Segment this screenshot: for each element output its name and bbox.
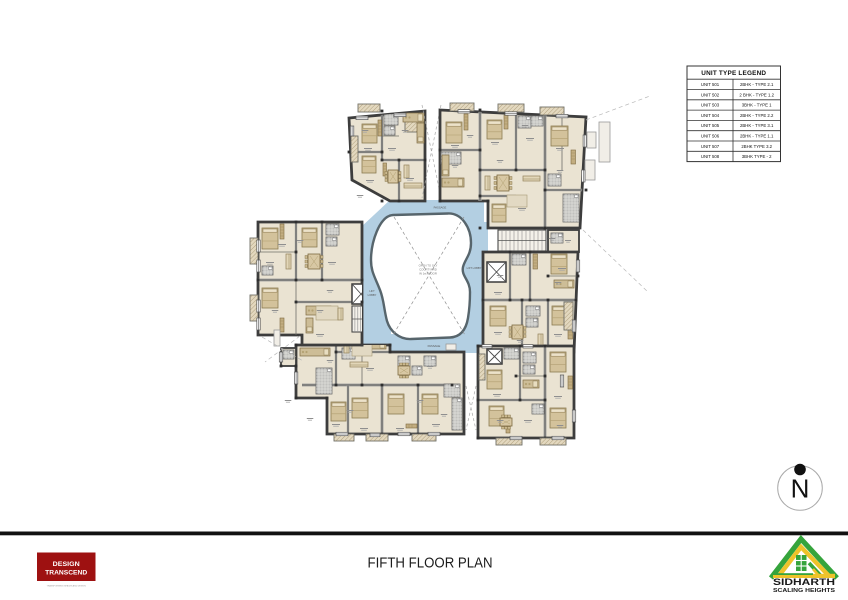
svg-text:UNIT TYPE LEGEND: UNIT TYPE LEGEND	[701, 70, 766, 77]
svg-text:PASSAGE: PASSAGE	[428, 344, 441, 348]
svg-text:SIDHARTH: SIDHARTH	[773, 577, 835, 588]
svg-text:UNIT 503: UNIT 503	[701, 103, 720, 108]
svg-text:3BHK TYPE - 2: 3BHK TYPE - 2	[742, 154, 772, 159]
svg-text:UNIT 502: UNIT 502	[701, 92, 720, 97]
svg-text:UNIT 501: UNIT 501	[701, 82, 720, 87]
svg-text:UNIT 505: UNIT 505	[701, 123, 720, 128]
svg-text:N: N	[791, 474, 810, 504]
svg-text:2BHK - TYPE 3.1: 2BHK - TYPE 3.1	[740, 123, 774, 128]
svg-text:LOBBY: LOBBY	[368, 293, 377, 297]
svg-text:SCALING HEIGHTS: SCALING HEIGHTS	[773, 588, 836, 594]
svg-text:UNIT 508: UNIT 508	[701, 154, 720, 159]
svg-text:TRANSCEND: TRANSCEND	[45, 571, 88, 577]
svg-text:TRANSFORMING SPACES AND DESIGN: TRANSFORMING SPACES AND DESIGN	[47, 585, 87, 588]
svg-text:2BHK TYPE 3.2: 2BHK TYPE 3.2	[741, 144, 772, 149]
svg-text:UNIT 504: UNIT 504	[701, 113, 720, 118]
svg-text:UNIT 506: UNIT 506	[701, 133, 720, 138]
svg-text:LIFT: LIFT	[369, 289, 375, 293]
svg-text:2 BHK - TYPE 1.2: 2 BHK - TYPE 1.2	[739, 92, 774, 97]
svg-text:UNIT 507: UNIT 507	[701, 144, 720, 149]
svg-text:IN 1st FLOOR: IN 1st FLOOR	[419, 272, 437, 276]
svg-text:FIFTH FLOOR PLAN: FIFTH FLOOR PLAN	[368, 556, 493, 572]
svg-text:3BHK - TYPE 1: 3BHK - TYPE 1	[742, 103, 772, 108]
svg-text:2BHK - TYPE 2.2: 2BHK - TYPE 2.2	[740, 113, 774, 118]
svg-text:LIFT LOBBY: LIFT LOBBY	[467, 266, 482, 270]
svg-text:2BHK - TYPE 2.1: 2BHK - TYPE 2.1	[740, 82, 774, 87]
svg-text:2BHK - TYPE 1.1: 2BHK - TYPE 1.1	[740, 133, 774, 138]
svg-text:PASSAGE: PASSAGE	[434, 206, 447, 210]
svg-text:DESIGN: DESIGN	[53, 562, 80, 568]
